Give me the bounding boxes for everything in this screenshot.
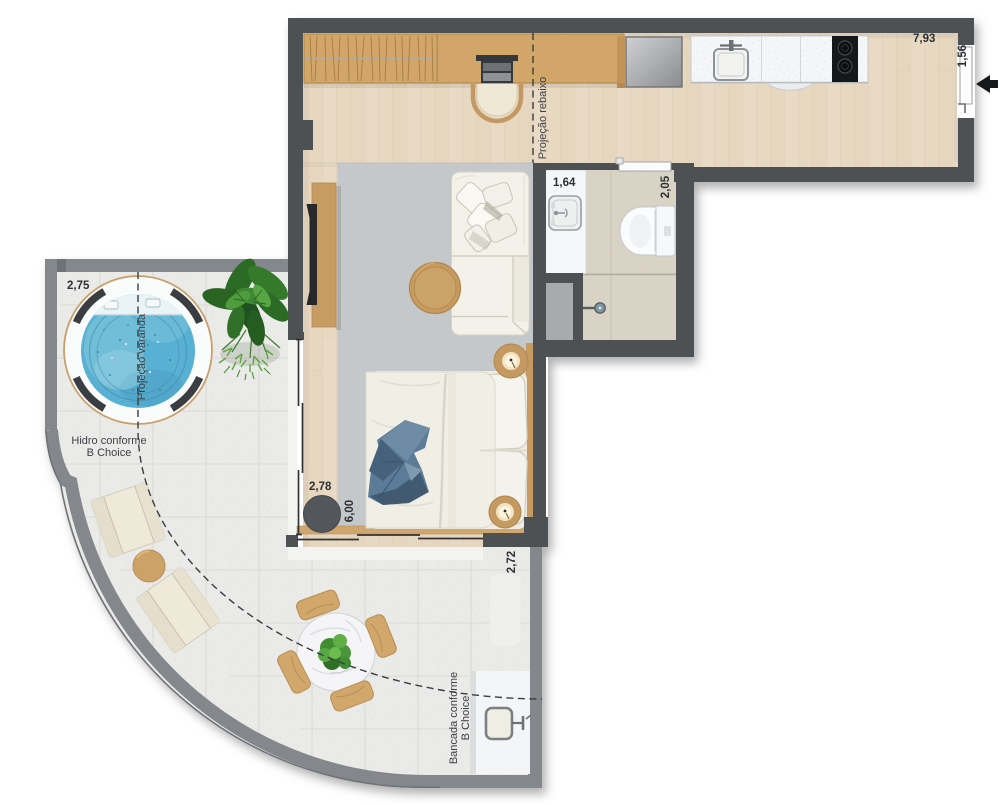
svg-text:1,56: 1,56 <box>957 45 969 67</box>
svg-text:B Choice: B Choice <box>460 696 472 741</box>
svg-text:Bancada conforme: Bancada conforme <box>448 672 460 764</box>
svg-text:Projeção varanda: Projeção varanda <box>136 313 148 400</box>
svg-text:1,64: 1,64 <box>553 177 576 189</box>
svg-text:7,93: 7,93 <box>913 33 935 45</box>
svg-text:Projeção rebaixo: Projeção rebaixo <box>537 77 549 160</box>
svg-text:B Choice: B Choice <box>87 447 132 459</box>
svg-text:2,78: 2,78 <box>309 481 332 493</box>
svg-text:2,72: 2,72 <box>506 551 518 573</box>
svg-text:2,75: 2,75 <box>67 280 90 292</box>
svg-text:Hidro conforme: Hidro conforme <box>71 435 146 447</box>
svg-text:6,00: 6,00 <box>344 500 356 522</box>
svg-text:2,05: 2,05 <box>660 175 672 198</box>
